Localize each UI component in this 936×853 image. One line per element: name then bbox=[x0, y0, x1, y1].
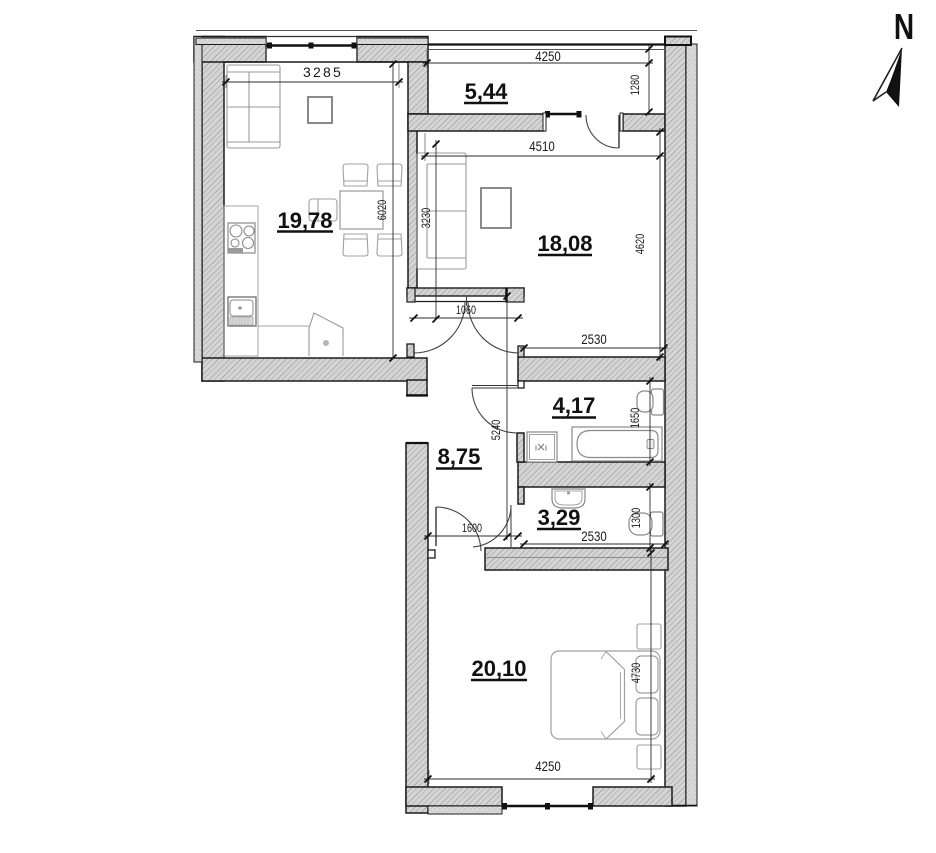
svg-text:N: N bbox=[894, 7, 914, 47]
svg-text:5,44: 5,44 bbox=[465, 79, 509, 104]
svg-text:6020: 6020 bbox=[377, 200, 389, 221]
svg-text:2530: 2530 bbox=[581, 331, 607, 347]
svg-text:1650: 1650 bbox=[630, 408, 642, 429]
svg-text:2530: 2530 bbox=[581, 528, 607, 544]
svg-text:5240: 5240 bbox=[491, 420, 503, 441]
svg-text:3,29: 3,29 bbox=[538, 505, 581, 530]
svg-text:4730: 4730 bbox=[631, 663, 643, 684]
svg-text:4250: 4250 bbox=[535, 48, 561, 64]
svg-text:4620: 4620 bbox=[635, 234, 647, 255]
svg-text:4250: 4250 bbox=[535, 758, 561, 774]
svg-text:20,10: 20,10 bbox=[471, 656, 526, 681]
svg-text:18,08: 18,08 bbox=[537, 231, 592, 256]
svg-text:3285: 3285 bbox=[303, 64, 343, 80]
svg-text:4,17: 4,17 bbox=[553, 393, 596, 418]
svg-text:1280: 1280 bbox=[630, 75, 642, 96]
svg-text:3230: 3230 bbox=[421, 208, 433, 229]
svg-text:1300: 1300 bbox=[631, 508, 643, 529]
svg-text:19,78: 19,78 bbox=[277, 208, 332, 233]
svg-text:4510: 4510 bbox=[529, 138, 555, 154]
svg-text:1600: 1600 bbox=[462, 523, 482, 535]
svg-text:1060: 1060 bbox=[456, 305, 476, 317]
svg-text:8,75: 8,75 bbox=[438, 444, 481, 469]
